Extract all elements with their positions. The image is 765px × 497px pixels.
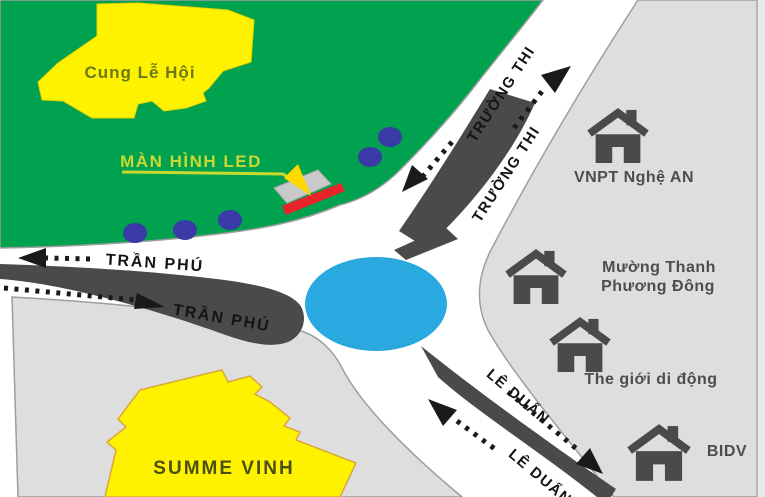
arrowhead-truong-thi-outbound bbox=[541, 66, 571, 93]
map-canvas: Cung Lễ Hội MÀN HÌNH LED TRẦN PHÚ TRẦN P… bbox=[0, 0, 765, 497]
tree-dot bbox=[123, 223, 147, 243]
right-edge-strip bbox=[757, 0, 765, 497]
tree-dot bbox=[378, 127, 402, 147]
led-screen-label: MÀN HÌNH LED bbox=[120, 152, 262, 171]
vnpt-label: VNPT Nghệ AN bbox=[574, 169, 694, 186]
arrowhead-le-duan-inbound bbox=[428, 399, 457, 426]
muong-thanh-label-line2: Phương Đông bbox=[601, 278, 715, 295]
muong-thanh-label-line1: Mường Thanh bbox=[602, 259, 716, 276]
arrowhead-truong-thi-inbound bbox=[402, 165, 428, 192]
the-gioi-di-dong-label: The giới di động bbox=[584, 371, 717, 388]
roundabout-circle bbox=[305, 257, 447, 351]
bidv-label: BIDV bbox=[707, 443, 747, 460]
tree-dot bbox=[218, 210, 242, 230]
tree-dot bbox=[173, 220, 197, 240]
arrow-dots-le-duan-inbound bbox=[457, 421, 499, 452]
traffic-location-map: Cung Lễ Hội MÀN HÌNH LED TRẦN PHÚ TRẦN P… bbox=[0, 0, 765, 497]
arrow-dots-tran-phu-west bbox=[46, 258, 90, 259]
summe-vinh-label: SUMME VINH bbox=[153, 458, 294, 479]
park-label: Cung Lễ Hội bbox=[84, 63, 195, 82]
tree-dot bbox=[358, 147, 382, 167]
